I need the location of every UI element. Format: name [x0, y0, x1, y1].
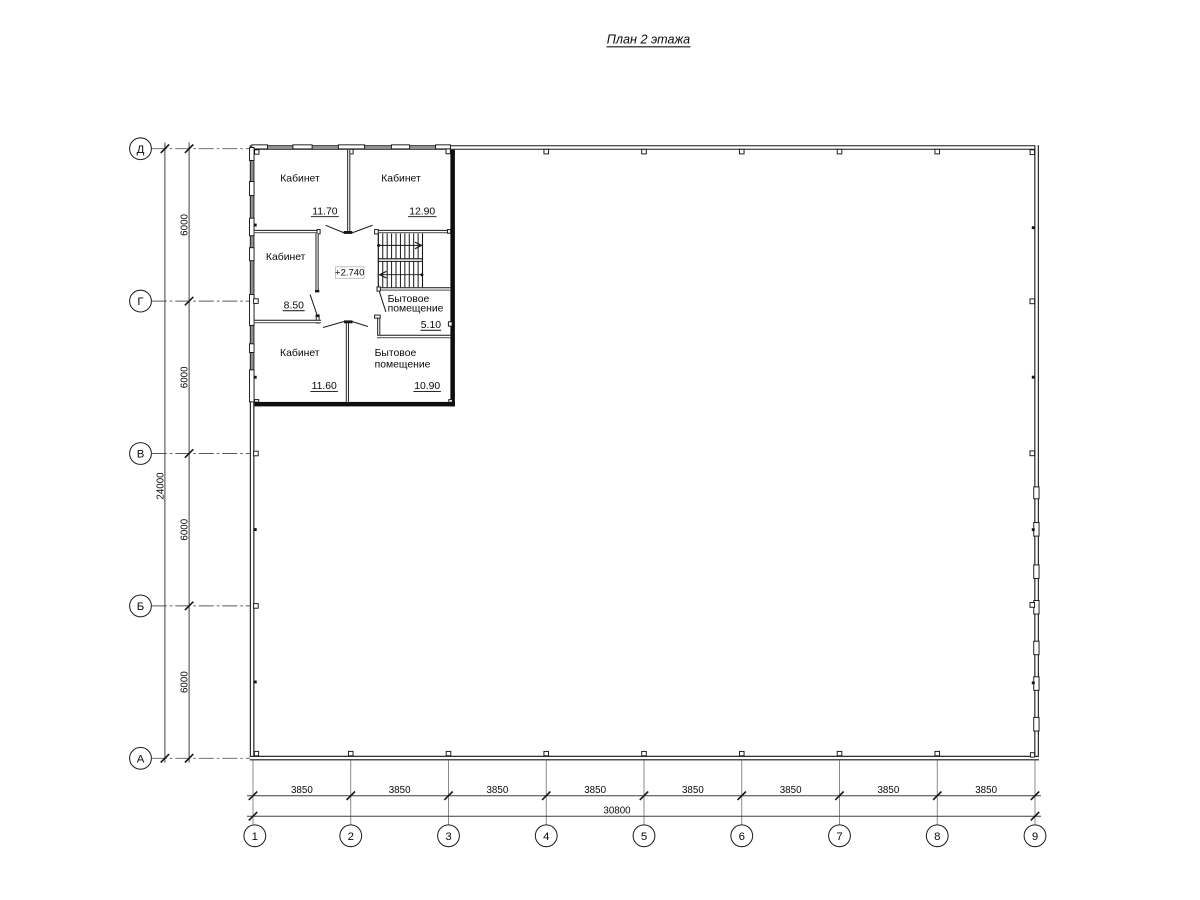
- svg-text:5.10: 5.10: [421, 320, 441, 331]
- svg-text:Б: Б: [137, 601, 144, 613]
- svg-text:А: А: [137, 753, 145, 765]
- svg-text:В: В: [137, 449, 145, 461]
- svg-text:5: 5: [641, 831, 647, 843]
- svg-text:3850: 3850: [877, 785, 899, 796]
- svg-text:3850: 3850: [682, 785, 704, 796]
- svg-text:12.90: 12.90: [409, 206, 435, 217]
- svg-text:3850: 3850: [389, 785, 411, 796]
- svg-text:1: 1: [252, 831, 258, 843]
- svg-text:помещение: помещение: [375, 359, 431, 370]
- svg-text:10.90: 10.90: [414, 381, 440, 392]
- svg-text:6000: 6000: [180, 366, 191, 388]
- svg-text:Г: Г: [137, 296, 143, 308]
- svg-text:+2.740: +2.740: [335, 268, 364, 279]
- svg-text:Кабинет: Кабинет: [280, 347, 320, 359]
- svg-text:Д: Д: [137, 144, 145, 156]
- svg-text:6: 6: [739, 831, 745, 843]
- svg-text:6000: 6000: [180, 671, 191, 693]
- svg-text:3850: 3850: [584, 785, 606, 796]
- svg-text:Кабинет: Кабинет: [381, 173, 421, 185]
- svg-text:3850: 3850: [780, 785, 802, 796]
- svg-text:4: 4: [543, 831, 549, 843]
- svg-text:Кабинет: Кабинет: [266, 251, 306, 263]
- svg-text:помещение: помещение: [388, 304, 444, 315]
- svg-text:7: 7: [836, 831, 842, 843]
- svg-text:6000: 6000: [180, 518, 191, 540]
- svg-text:3850: 3850: [975, 785, 997, 796]
- svg-text:Бытовое: Бытовое: [375, 348, 417, 359]
- svg-text:3850: 3850: [486, 785, 508, 796]
- svg-text:11.70: 11.70: [312, 206, 337, 217]
- svg-text:2: 2: [348, 831, 354, 843]
- svg-text:8: 8: [934, 831, 940, 843]
- svg-text:24000: 24000: [155, 472, 166, 500]
- svg-text:3850: 3850: [291, 785, 313, 796]
- svg-text:9: 9: [1032, 831, 1038, 843]
- svg-text:30800: 30800: [603, 806, 631, 817]
- svg-text:6000: 6000: [180, 213, 191, 235]
- svg-text:11.60: 11.60: [312, 381, 337, 392]
- svg-text:3: 3: [445, 831, 451, 843]
- svg-text:План 2 этажа: План 2 этажа: [607, 33, 690, 47]
- svg-text:8.50: 8.50: [284, 300, 304, 311]
- svg-text:Кабинет: Кабинет: [280, 173, 320, 185]
